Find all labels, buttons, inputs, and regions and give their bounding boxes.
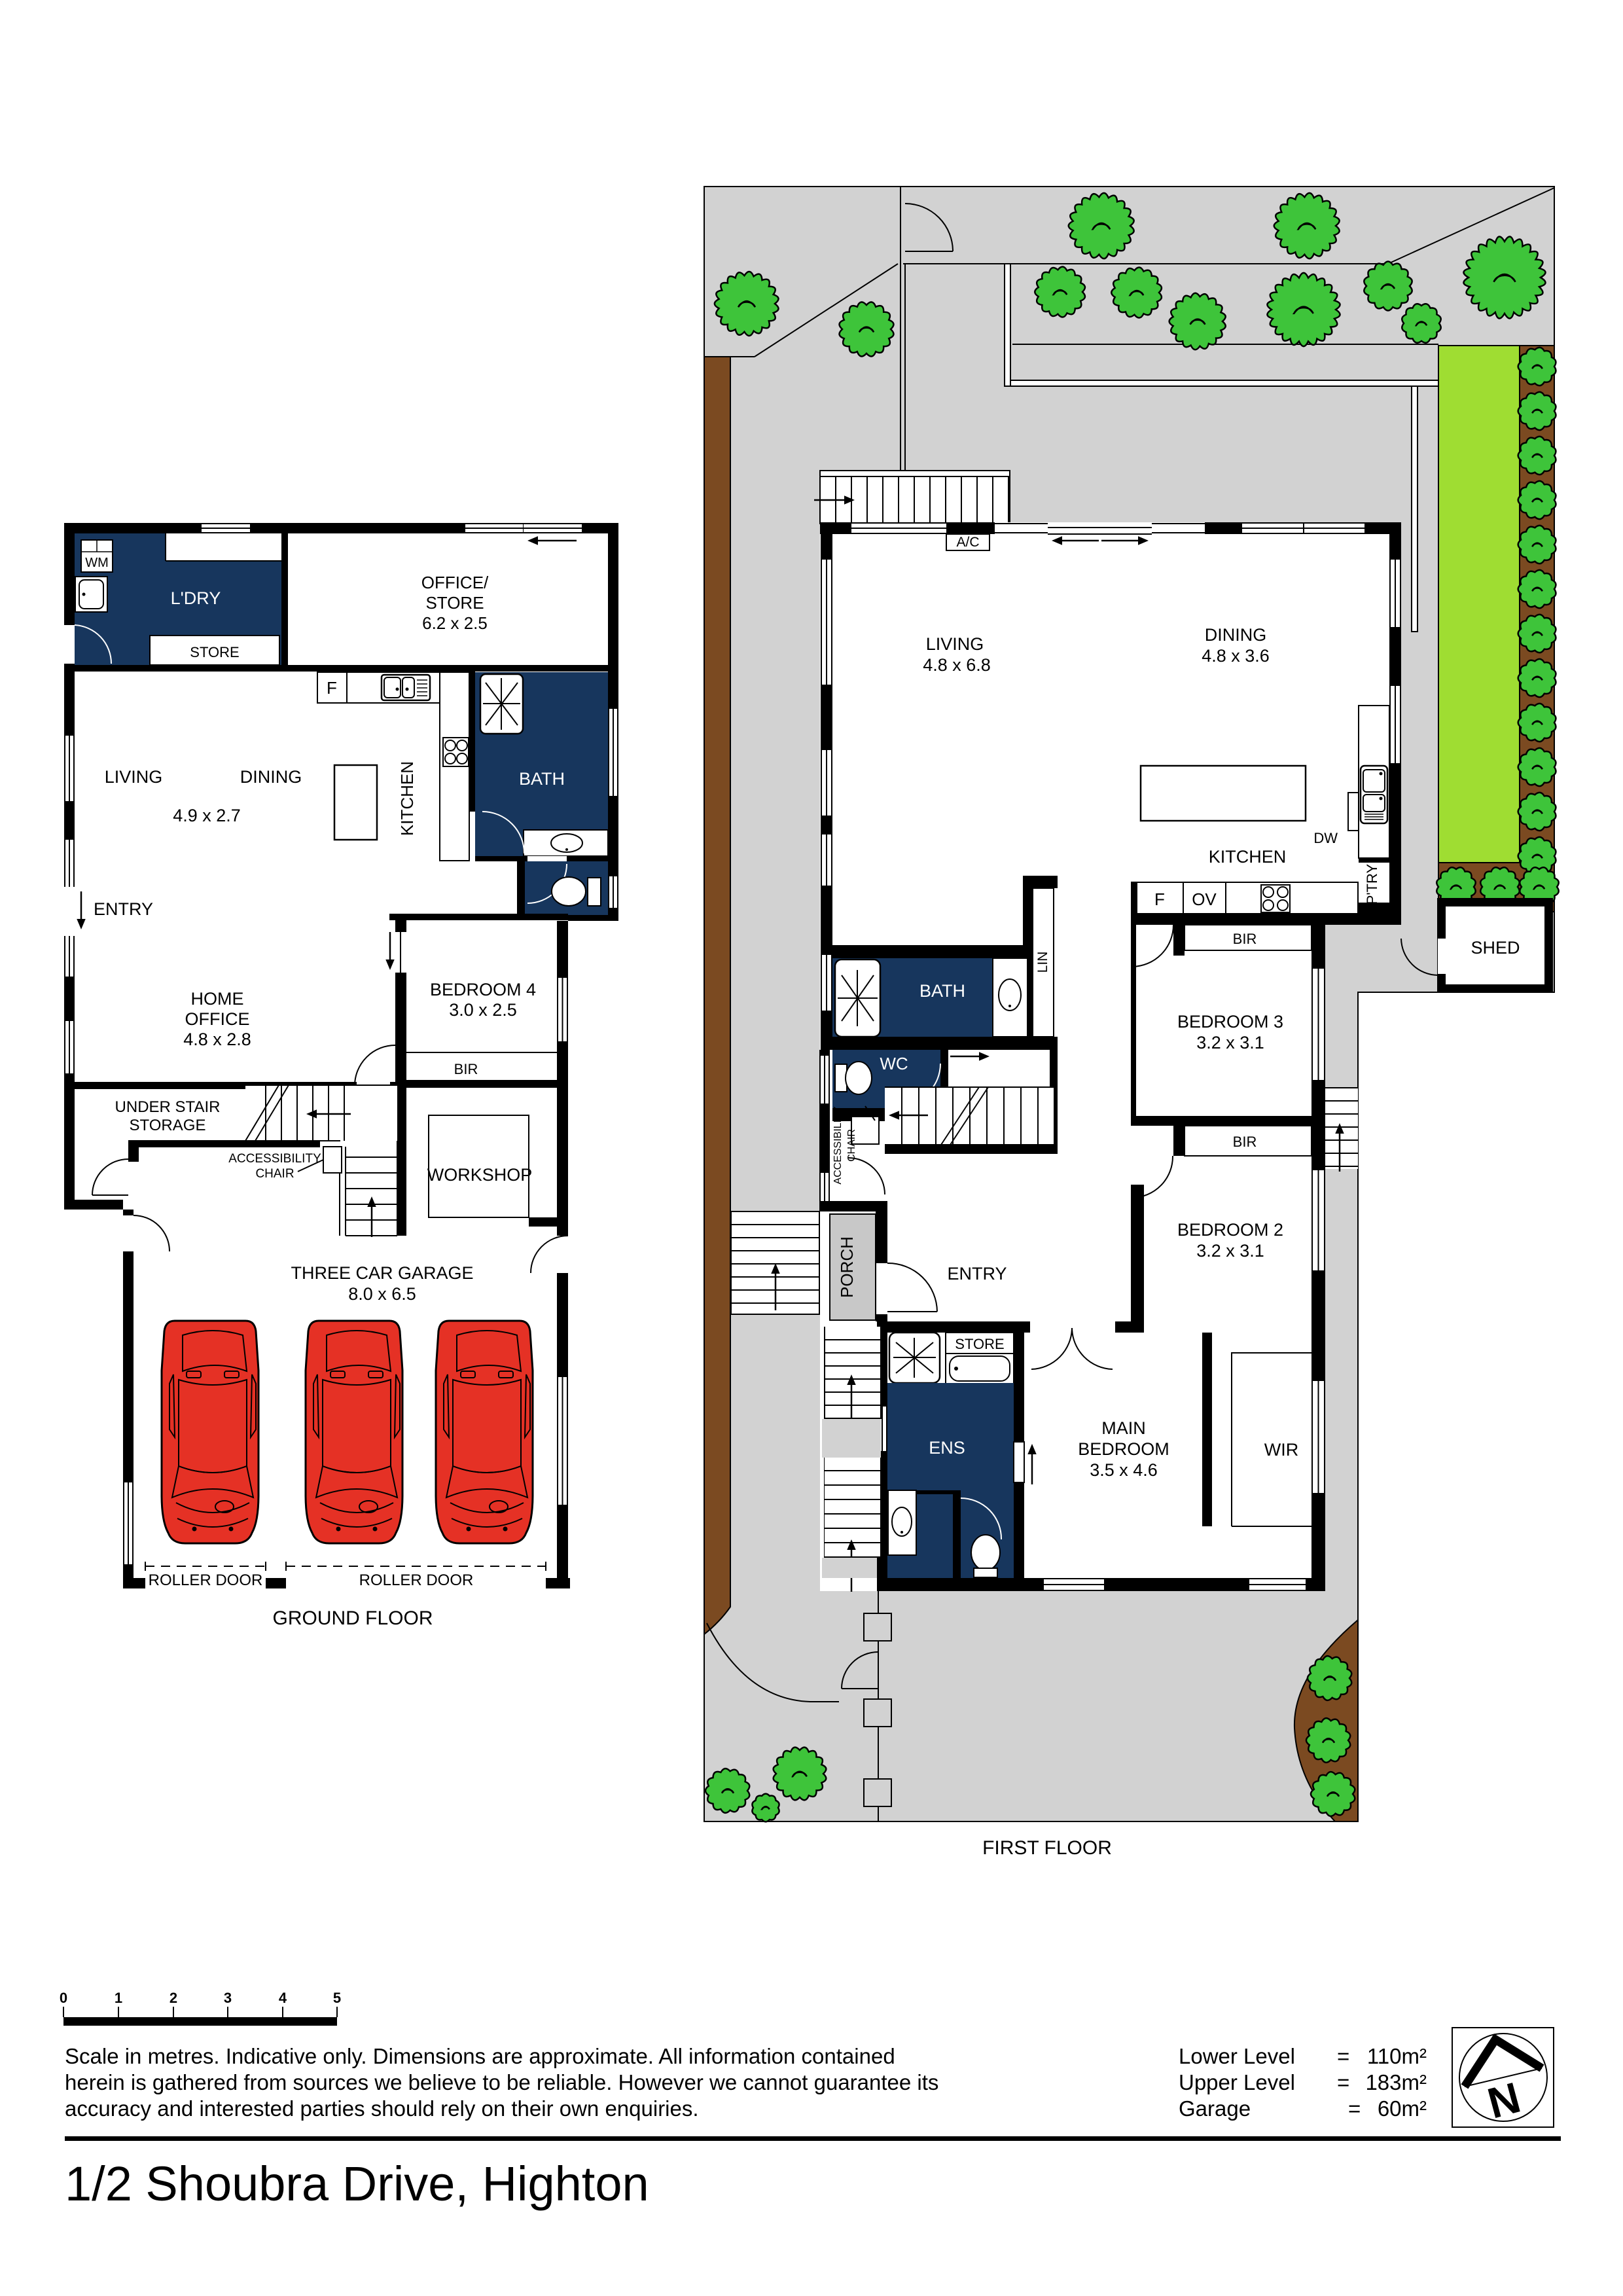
svg-text:PORCH: PORCH xyxy=(837,1236,857,1298)
svg-text:4.8 x 6.8: 4.8 x 6.8 xyxy=(923,655,991,675)
svg-text:6.2 x 2.5: 6.2 x 2.5 xyxy=(422,613,488,633)
svg-text:5: 5 xyxy=(333,1990,341,2006)
svg-text:BIR: BIR xyxy=(454,1061,478,1077)
svg-text:LIVING: LIVING xyxy=(926,634,984,654)
svg-text:4.8 x 3.6: 4.8 x 3.6 xyxy=(1202,646,1270,666)
svg-text:ROLLER DOOR: ROLLER DOOR xyxy=(149,1571,263,1589)
svg-text:KITCHEN: KITCHEN xyxy=(397,761,417,836)
svg-text:BIR: BIR xyxy=(1233,1134,1257,1150)
svg-text:183m²: 183m² xyxy=(1365,2070,1427,2094)
svg-text:ACCESSIBILITY: ACCESSIBILITY xyxy=(832,1106,844,1184)
svg-text:Upper Level: Upper Level xyxy=(1179,2070,1295,2094)
svg-text:FIRST FLOOR: FIRST FLOOR xyxy=(982,1837,1112,1859)
svg-text:60m²: 60m² xyxy=(1378,2096,1427,2121)
svg-text:HOME: HOME xyxy=(191,989,244,1009)
svg-text:UNDER STAIR: UNDER STAIR xyxy=(115,1098,221,1116)
svg-text:BEDROOM 4: BEDROOM 4 xyxy=(430,980,536,999)
svg-text:BEDROOM 2: BEDROOM 2 xyxy=(1177,1220,1283,1240)
svg-text:KITCHEN: KITCHEN xyxy=(1209,847,1287,867)
svg-text:STORAGE: STORAGE xyxy=(130,1117,206,1134)
svg-text:accuracy and interested partie: accuracy and interested parties should r… xyxy=(65,2096,699,2121)
svg-text:=: = xyxy=(1337,2044,1349,2068)
svg-text:OFFICE: OFFICE xyxy=(185,1009,250,1029)
svg-text:F: F xyxy=(327,678,337,698)
svg-text:Scale in metres. Indicative on: Scale in metres. Indicative only. Dimens… xyxy=(65,2044,895,2068)
svg-text:DINING: DINING xyxy=(1205,625,1267,645)
svg-text:MAIN: MAIN xyxy=(1101,1418,1146,1438)
svg-text:ENTRY: ENTRY xyxy=(94,899,153,919)
svg-text:CHAIR: CHAIR xyxy=(255,1167,294,1181)
svg-text:A/C: A/C xyxy=(956,535,979,550)
svg-text:WC: WC xyxy=(880,1054,908,1073)
svg-text:WM: WM xyxy=(85,556,109,570)
svg-text:=: = xyxy=(1337,2070,1349,2094)
svg-text:4: 4 xyxy=(279,1990,287,2006)
svg-text:GROUND FLOOR: GROUND FLOOR xyxy=(272,1607,433,1629)
svg-text:F: F xyxy=(1154,889,1165,909)
svg-text:ENTRY: ENTRY xyxy=(947,1264,1007,1283)
svg-text:LIN: LIN xyxy=(1035,952,1050,973)
svg-text:ROLLER DOOR: ROLLER DOOR xyxy=(359,1571,474,1589)
svg-text:WIR: WIR xyxy=(1264,1440,1298,1460)
svg-text:SHED: SHED xyxy=(1471,938,1520,958)
svg-text:LIVING: LIVING xyxy=(105,767,163,787)
svg-text:3.2 x 3.1: 3.2 x 3.1 xyxy=(1196,1033,1264,1052)
svg-text:3.5 x 4.6: 3.5 x 4.6 xyxy=(1090,1460,1158,1480)
svg-text:BEDROOM: BEDROOM xyxy=(1078,1439,1169,1459)
svg-text:4.9 x 2.7: 4.9 x 2.7 xyxy=(173,806,241,825)
svg-text:BEDROOM 3: BEDROOM 3 xyxy=(1177,1012,1283,1031)
svg-text:2: 2 xyxy=(169,1990,177,2006)
svg-text:Garage: Garage xyxy=(1179,2096,1251,2121)
svg-text:=: = xyxy=(1348,2096,1361,2121)
svg-text:L'DRY: L'DRY xyxy=(171,588,221,608)
svg-text:THREE CAR GARAGE: THREE CAR GARAGE xyxy=(291,1263,473,1283)
svg-text:1: 1 xyxy=(115,1990,122,2006)
svg-text:STORE: STORE xyxy=(955,1336,1004,1352)
svg-text:CHAIR: CHAIR xyxy=(846,1129,857,1162)
svg-text:P'TRY: P'TRY xyxy=(1364,863,1380,905)
svg-text:BATH: BATH xyxy=(919,981,965,1001)
svg-text:DW: DW xyxy=(1313,830,1338,846)
svg-text:ACCESSIBILITY: ACCESSIBILITY xyxy=(228,1152,321,1166)
svg-text:BIR: BIR xyxy=(1233,931,1257,947)
svg-text:WORKSHOP: WORKSHOP xyxy=(427,1165,533,1185)
svg-text:110m²: 110m² xyxy=(1367,2044,1427,2068)
svg-text:3.2 x 3.1: 3.2 x 3.1 xyxy=(1196,1241,1264,1261)
svg-text:BATH: BATH xyxy=(519,769,565,789)
svg-text:OFFICE/: OFFICE/ xyxy=(421,573,489,592)
svg-text:3: 3 xyxy=(224,1990,232,2006)
svg-text:STORE: STORE xyxy=(190,644,239,660)
svg-text:OV: OV xyxy=(1192,889,1217,909)
svg-text:4.8 x 2.8: 4.8 x 2.8 xyxy=(183,1030,251,1049)
svg-text:8.0 x 6.5: 8.0 x 6.5 xyxy=(348,1284,416,1304)
svg-text:DINING: DINING xyxy=(240,767,302,787)
svg-text:STORE: STORE xyxy=(425,593,484,613)
svg-text:ENS: ENS xyxy=(929,1438,965,1458)
svg-text:herein is gathered from source: herein is gathered from sources we belie… xyxy=(65,2070,938,2094)
svg-text:Lower Level: Lower Level xyxy=(1179,2044,1295,2068)
svg-text:3.0 x 2.5: 3.0 x 2.5 xyxy=(449,1000,517,1020)
svg-text:0: 0 xyxy=(60,1990,67,2006)
svg-text:1/2 Shoubra Drive, Highton: 1/2 Shoubra Drive, Highton xyxy=(65,2157,649,2211)
